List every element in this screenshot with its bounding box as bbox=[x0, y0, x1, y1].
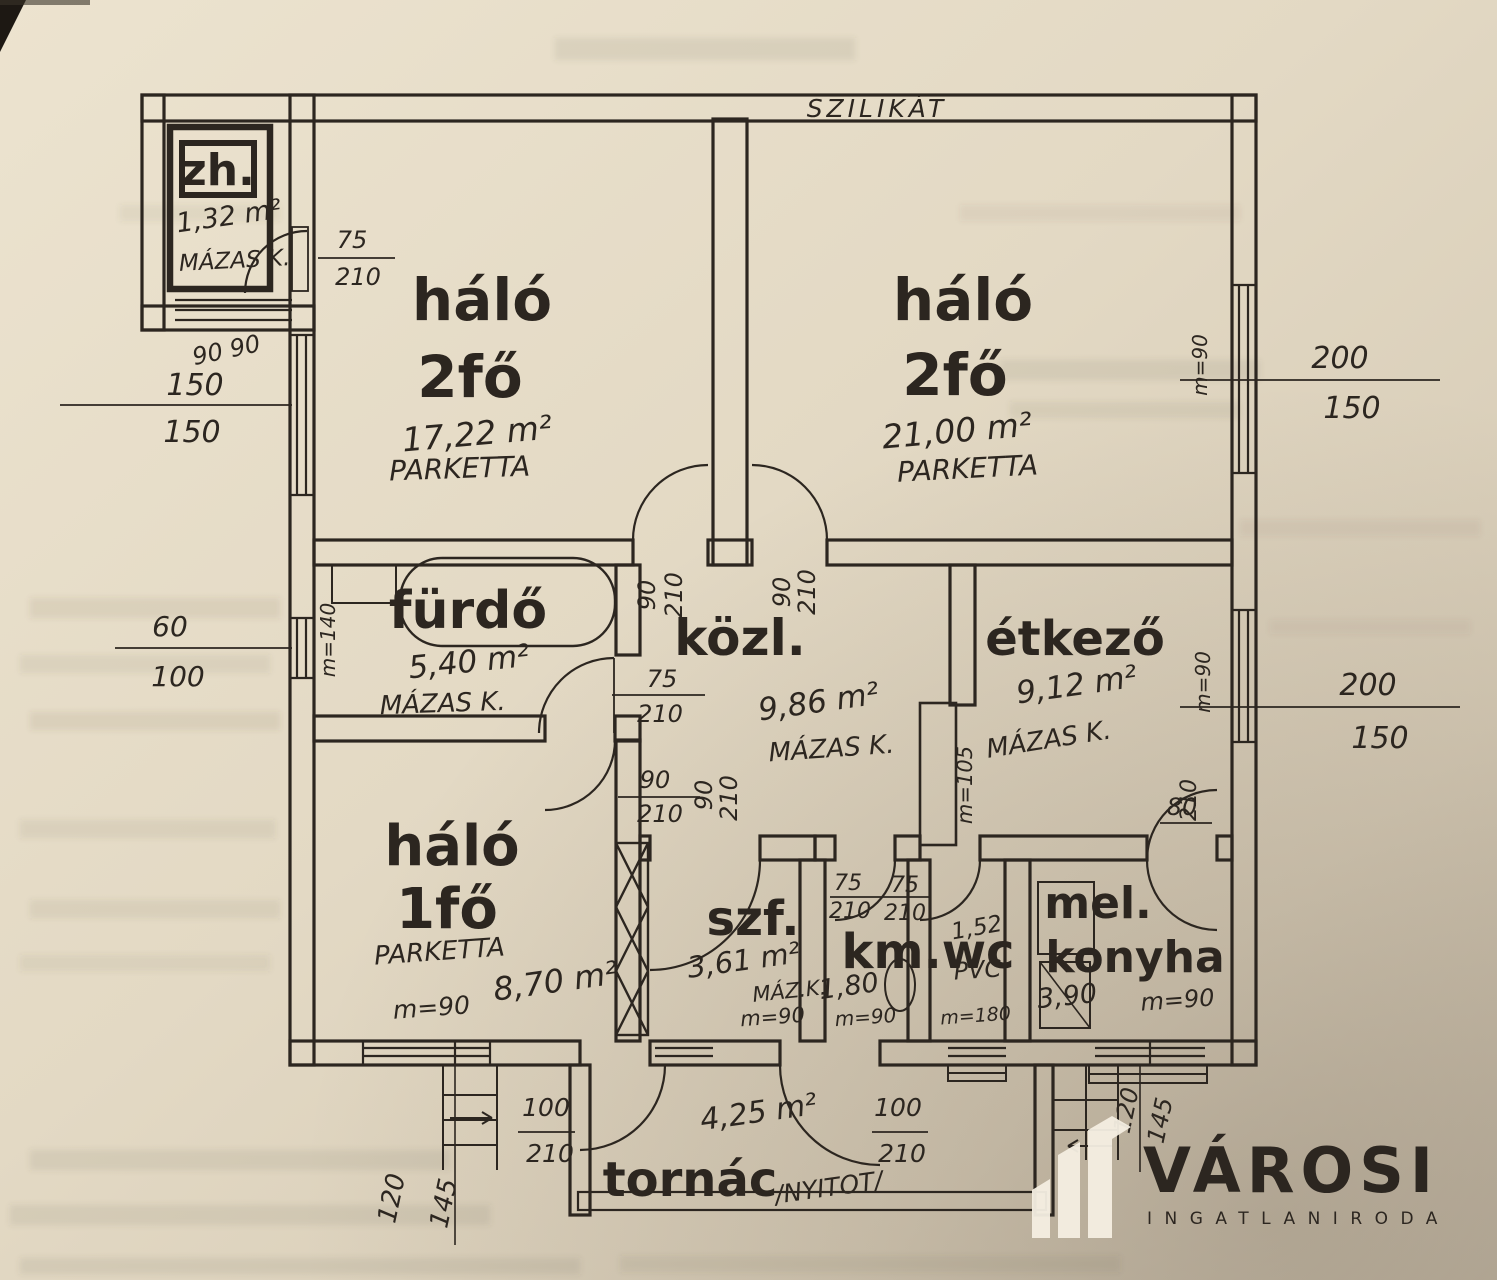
dim-win-right1-w: 200 bbox=[1311, 341, 1368, 376]
dim-win-left1-w: 150 bbox=[166, 368, 223, 403]
dim-etkezo-door-h: 210 bbox=[1177, 779, 1202, 821]
dim-win-right1-h: 150 bbox=[1323, 391, 1380, 426]
room-halo-c-height: m=90 bbox=[392, 990, 471, 1024]
dim-win-right1-parapet: m=90 bbox=[1188, 334, 1212, 396]
dim-tornac-door-l-w: 100 bbox=[522, 1093, 570, 1122]
dim-win-left2-parapet: m=140 bbox=[316, 603, 340, 677]
dim-win-left2-h: 100 bbox=[151, 660, 204, 693]
room-wc-floor: PVC bbox=[953, 954, 1003, 985]
dim-kozl-door1-h: 210 bbox=[660, 572, 688, 618]
material-note: SZILIKÁT bbox=[807, 94, 948, 123]
dim-wc-door-w: 75 bbox=[891, 873, 919, 898]
dim-halo1-door-h: 210 bbox=[637, 800, 683, 828]
dim-furdo-door-w: 75 bbox=[647, 665, 678, 693]
room-tornac-name: tornác bbox=[603, 1152, 778, 1208]
dim-win-left1-h: 150 bbox=[163, 415, 220, 450]
room-mel-line1: mel. bbox=[1044, 878, 1152, 929]
dim-kozl-door2-h: 210 bbox=[793, 569, 821, 615]
room-km-height: m=90 bbox=[834, 1003, 897, 1031]
room-furdo-name: fürdő bbox=[389, 581, 547, 641]
dim-furdo-door-h: 210 bbox=[637, 700, 683, 728]
room-zh-name: zh. bbox=[181, 145, 255, 196]
room-halo-c-occupancy: 1fő bbox=[396, 877, 498, 942]
dim-win-right2-h: 150 bbox=[1351, 721, 1408, 756]
dim-wc-door-h: 210 bbox=[884, 901, 926, 926]
room-halo-a-name: háló bbox=[412, 266, 552, 334]
floorplan-photo: SZILIKÁT zh. 1,32 m² MÁZAS K. háló 2fő 1… bbox=[0, 0, 1497, 1280]
dim-win-right2-parapet: m=90 bbox=[1191, 651, 1215, 713]
dim-halo1-door2-w: 90 bbox=[690, 780, 718, 811]
dim-tornac-door-r-h: 210 bbox=[878, 1139, 926, 1168]
room-kozl-name: közl. bbox=[674, 609, 806, 667]
dim-win-right2-w: 200 bbox=[1339, 668, 1396, 703]
room-halo-c-name: háló bbox=[384, 814, 519, 879]
room-halo-b-name: háló bbox=[893, 266, 1033, 334]
room-mel-height: m=90 bbox=[1140, 983, 1216, 1016]
brand-logo-tagline: INGATLANIRODA bbox=[1147, 1209, 1450, 1229]
room-halo-a-floor: PARKETTA bbox=[389, 450, 531, 488]
room-etkezo-name: étkező bbox=[985, 611, 1165, 667]
dim-tornac-door-l-h: 210 bbox=[526, 1139, 574, 1168]
dim-tornac-door-r-w: 100 bbox=[874, 1093, 922, 1122]
dim-win-left2-w: 60 bbox=[152, 610, 188, 643]
dim-km-door-w: 75 bbox=[834, 871, 862, 896]
room-mel-area: 3,90 bbox=[1036, 978, 1099, 1015]
dim-zh-door-w: 75 bbox=[337, 226, 368, 254]
brand-logo: VÁROSI INGATLANIRODA bbox=[1032, 1116, 1450, 1238]
room-szf-height: m=90 bbox=[739, 1003, 805, 1031]
dim-kozl-door2-w: 90 bbox=[768, 577, 796, 608]
dim-km-door-h: 210 bbox=[829, 899, 871, 924]
dim-kozl-door1-w: 90 bbox=[633, 580, 661, 611]
room-furdo-floor: MÁZAS K. bbox=[379, 685, 506, 721]
dim-zh-door-h: 210 bbox=[335, 263, 381, 291]
room-mel-line2: konyha bbox=[1045, 932, 1224, 983]
dim-halo1-door-w: 90 bbox=[640, 766, 671, 794]
dim-halo1-door2-h: 210 bbox=[715, 775, 743, 821]
brand-logo-wordmark: VÁROSI bbox=[1143, 1134, 1439, 1207]
room-halo-a-occupancy: 2fő bbox=[417, 343, 522, 411]
room-halo-b-occupancy: 2fő bbox=[902, 341, 1007, 409]
dim-chimney-height: m=105 bbox=[953, 746, 977, 824]
